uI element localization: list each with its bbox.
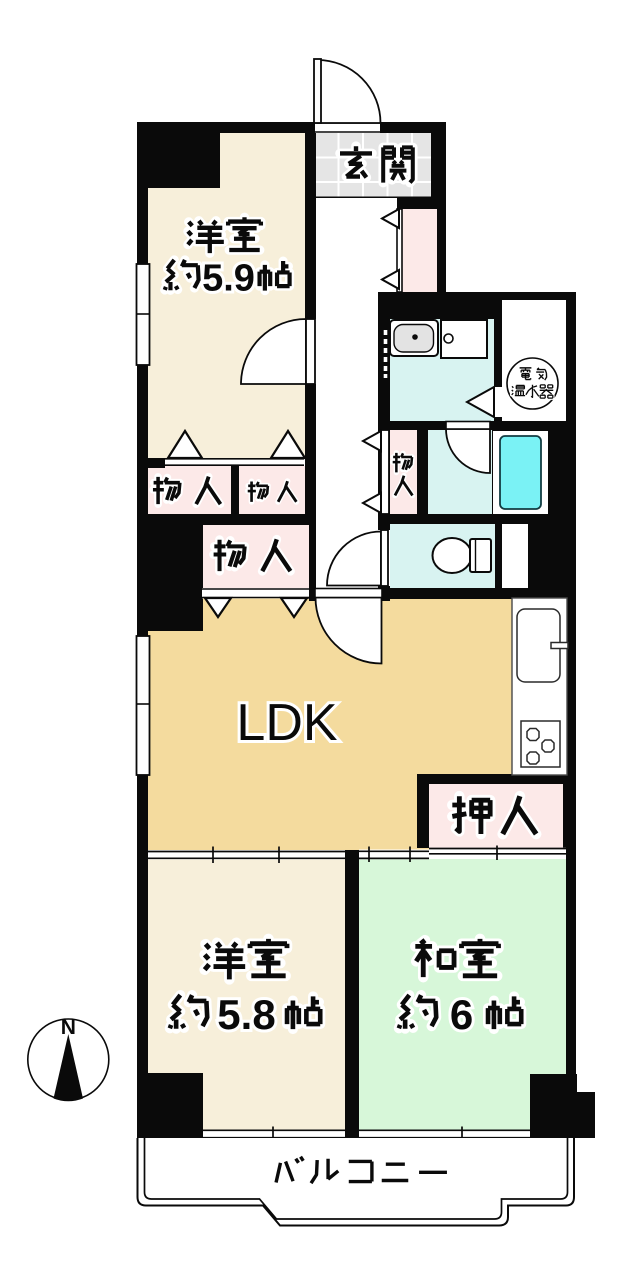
svg-text:5.9: 5.9 [202,258,255,300]
svg-text:LDK: LDK [236,694,337,752]
svg-text:6: 6 [450,991,473,1038]
svg-text:5.8: 5.8 [217,991,275,1038]
svg-text:N: N [61,1016,76,1039]
